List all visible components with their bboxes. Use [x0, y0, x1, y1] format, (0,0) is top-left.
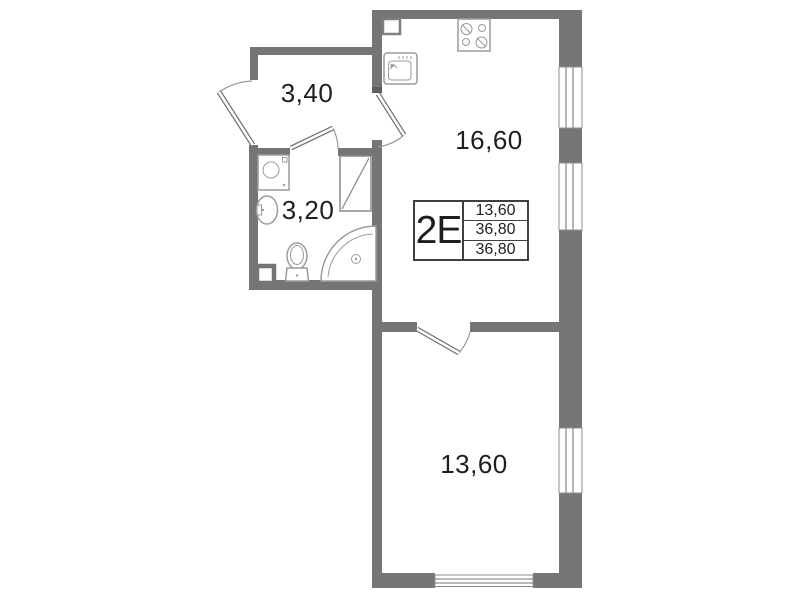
wall-divider-right: [470, 322, 559, 332]
wall-hallway-top: [250, 47, 372, 55]
wall-spine-upper: [372, 10, 382, 93]
floor-plan-drawing: [0, 0, 799, 600]
bedroom-door-icon: [417, 329, 470, 353]
kitchen-living-area-label: 16,60: [439, 125, 539, 155]
wall-bottom-right: [533, 573, 582, 588]
toilet-icon: [286, 243, 309, 281]
column-bathroom-corner: [257, 266, 274, 283]
floor-plan: 3,40 3,20 16,60 13,60 2Е 13,60 36,80 36,…: [0, 0, 799, 600]
wall-right-b: [559, 230, 582, 428]
corner-bathtub-icon: [321, 226, 376, 281]
wall-hallway-left: [250, 47, 258, 80]
wall-bathroom-top-right: [338, 148, 372, 156]
stove-4-burner-icon: [458, 19, 490, 51]
washing-machine-icon: [258, 155, 289, 190]
kitchen-sink-icon: [384, 53, 417, 84]
wall-divider-left: [382, 322, 417, 332]
bathroom-door-icon: [291, 128, 338, 149]
wall-right-pier: [559, 128, 582, 163]
wall-top: [372, 10, 582, 19]
bathroom-area-label: 3,20: [258, 195, 358, 225]
bedroom-area-label: 13,60: [424, 449, 524, 479]
hallway-area-label: 3,40: [257, 78, 357, 108]
window-kitchen-1-icon: [559, 67, 582, 128]
wall-spine-endcap: [372, 87, 382, 93]
unit-total-area: 36,80: [464, 240, 527, 259]
window-bedroom-bottom-icon: [435, 575, 533, 587]
unit-info-table: 2Е 13,60 36,80 36,80: [413, 200, 529, 261]
unit-area-values: 13,60 36,80 36,80: [464, 202, 527, 259]
window-kitchen-2-icon: [559, 163, 582, 230]
entrance-door-icon: [219, 81, 253, 145]
unit-type-label: 2Е: [415, 202, 464, 259]
unit-living-area: 13,60: [464, 202, 527, 220]
window-bedroom-icon: [559, 428, 582, 493]
wall-spine-lower: [372, 140, 382, 588]
kitchen-door-icon: [378, 94, 404, 147]
unit-area-mid: 36,80: [464, 220, 527, 239]
wall-right-a: [559, 10, 582, 67]
pilaster-kitchen: [383, 19, 400, 34]
